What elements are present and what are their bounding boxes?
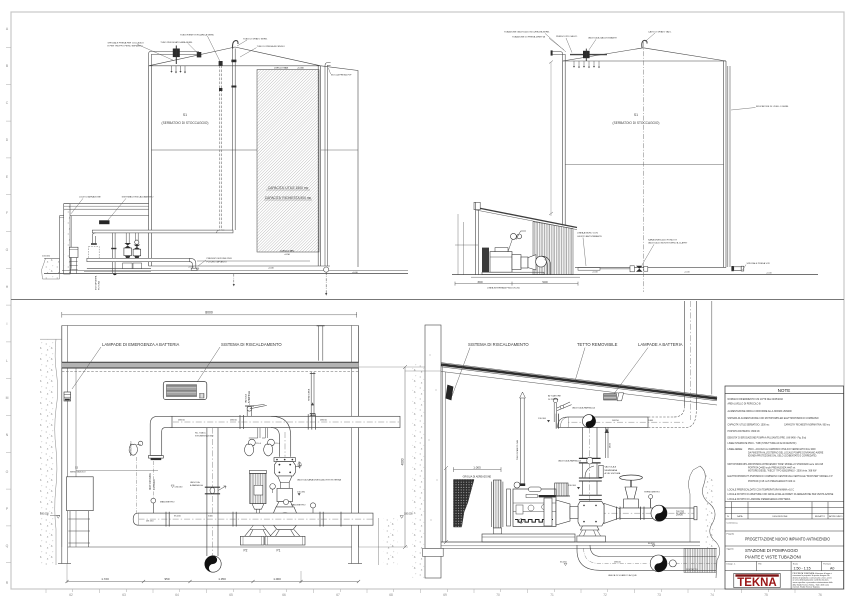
svg-text:MANOMETRO: MANOMETRO (160, 501, 175, 504)
svg-text:S1: S1 (634, 113, 638, 117)
svg-text:(SERBATOIO DI STOCCAGGIO): (SERBATOIO DI STOCCAGGIO) (613, 121, 660, 125)
svg-text:PRESSOSTATO: PRESSOSTATO (129, 441, 132, 456)
svg-text:TUBO SCARICO GAS: TUBO SCARICO GAS (516, 439, 519, 460)
svg-text:950: 950 (164, 577, 169, 581)
svg-text:63: 63 (122, 593, 126, 597)
svg-text:MEMBRANA: MEMBRANA (605, 469, 618, 472)
svg-text:SISTEMA DI RISCALDAMENTO: SISTEMA DI RISCALDAMENTO (468, 342, 529, 347)
svg-text:1:50 - 1:15: 1:50 - 1:15 (794, 566, 811, 570)
svg-text:INDICATORE DI LIVELLO SERB.: INDICATORE DI LIVELLO SERB. (756, 105, 789, 108)
svg-text:PN16 - ACCIAIO AL CARBONIO VIN: PN16 - ACCIAIO AL CARBONIO VINILICO VERN… (748, 448, 816, 451)
svg-text:DI PRESA: DI PRESA (548, 398, 559, 401)
svg-text:VALVOLA A FARFALLA: VALVOLA A FARFALLA (572, 407, 595, 410)
svg-text:E PER TROPPO PIENO IMPIANTO: E PER TROPPO PIENO IMPIANTO (108, 45, 143, 48)
svg-text:VASCA DI SCARICO ACQUE: VASCA DI SCARICO ACQUE (608, 574, 637, 577)
svg-text:ATTUATORE: ATTUATORE (548, 395, 561, 398)
svg-text:VALVOLA: VALVOLA (190, 481, 200, 484)
svg-text:MOTOPOMPA: MOTOPOMPA (95, 275, 98, 290)
svg-text:(SERBATOIO DI STOCCAGGIO): (SERBATOIO DI STOCCAGGIO) (162, 121, 209, 125)
svg-text:VALVOLA A: VALVOLA A (605, 466, 617, 469)
svg-text:SFIATO ARIA: SFIATO ARIA (307, 388, 310, 401)
svg-text:72: 72 (603, 593, 607, 597)
svg-text:ELETTROPOMPA PT-PS:: ELETTROPOMPA PT-PS: (728, 475, 754, 478)
svg-text:LAMPADE DI EMERGENZA A BATTERI: LAMPADE DI EMERGENZA A BATTERIA (102, 342, 180, 347)
svg-text:PORTATA RICHIESTA: 4500 lt/h: PORTATA RICHIESTA: 4500 lt/h (728, 430, 761, 433)
svg-text:100.000: 100.000 (404, 512, 413, 515)
svg-text:71: 71 (550, 593, 554, 597)
svg-text:SPECIALE PRESA PER COLLAUDO: SPECIALE PRESA PER COLLAUDO (108, 41, 145, 44)
svg-text:62: 62 (69, 593, 73, 597)
svg-text:TUBAZIONE VALVOLA DI SICUREZZA: TUBAZIONE VALVOLA DI SICUREZZA SERB. (504, 31, 550, 34)
svg-text:DN150: DN150 (230, 420, 238, 422)
svg-text:ALIMENTAZIONE IDRICA CONFORME: ALIMENTAZIONE IDRICA CONFORME ALLA NORMA… (728, 410, 793, 413)
svg-text:130.490: 130.490 (297, 491, 306, 493)
svg-text:LOCALE DOTATO DI APERTURE CON: LOCALE DOTATO DI APERTURE CON GRIGLIA NE… (728, 493, 834, 496)
svg-text:TUBAZIONE DI PRESA DIRETTA: TUBAZIONE DI PRESA DIRETTA (512, 36, 546, 39)
svg-text:DN150: DN150 (320, 420, 328, 422)
svg-text:IDONEA PROTEZIONE DAL GELO (CO: IDONEA PROTEZIONE DAL GELO (COIBENTATE E… (748, 454, 817, 457)
svg-text:CAPACITA' RICHIESTA NORMATIVA:: CAPACITA' RICHIESTA NORMATIVA: 900 mc (784, 423, 831, 426)
svg-text:SISTEMA DI RISCALDAMENTO: SISTEMA DI RISCALDAMENTO (221, 342, 282, 347)
svg-text:POZZETTO: POZZETTO (686, 569, 698, 571)
svg-text:TETTO REMOVIBILE: TETTO REMOVIBILE (577, 342, 618, 347)
svg-text:1.005: 1.005 (473, 465, 481, 469)
svg-text:130.360: 130.360 (568, 485, 577, 487)
svg-text:G: G (6, 248, 9, 252)
svg-text:PERISCOPIO VALVO: PERISCOPIO VALVO (556, 35, 577, 38)
svg-text:LIVELLO MIN: LIVELLO MIN (280, 251, 294, 253)
svg-text:MOTOPOMPA MP1-MP2:: MOTOPOMPA MP1-MP2: (728, 463, 754, 466)
svg-text:DN100: DN100 (614, 562, 622, 564)
svg-text:CAPACITA' UTILE 1500 mc: CAPACITA' UTILE 1500 mc (268, 186, 309, 190)
svg-text:PORTATA Q=900 mc/h PREVALE: PORTATA Q=900 mc/h PREVALENZA H=87 mt (748, 467, 796, 470)
svg-text:BOCCA PRESA VVF: BOCCA PRESA VVF (331, 74, 352, 77)
svg-text:POMPA ANTINCENDIO "FIRE" MODEL: POMPA ANTINCENDIO "FIRE" MODELLO STANDAR… (753, 463, 824, 466)
svg-text:100.000: 100.000 (40, 512, 49, 515)
svg-text:PROGETTAZIONE NUOVO IMPIANTO A: PROGETTAZIONE NUOVO IMPIANTO ANTINCENDIO (745, 537, 831, 542)
svg-text:103.000: 103.000 (42, 256, 51, 258)
svg-text:MOTORE DIESEL "IVECO" TIPO 828: MOTORE DIESEL "IVECO" TIPO 8281SRM10 - 2… (748, 470, 817, 473)
svg-text:4500: 4500 (477, 281, 483, 284)
svg-text:LOCALE DOTATO DI LAMPADE D'EME: LOCALE DOTATO DI LAMPADE D'EMERGENZA A B… (728, 498, 791, 501)
svg-text:SERB. GASOLIO: SERB. GASOLIO (70, 470, 86, 473)
svg-text:POMPA DI COMPENSO CENTRIFUGA V: POMPA DI COMPENSO CENTRIFUGA VERTICALE "… (753, 475, 833, 478)
svg-text:Scala: Scala (793, 564, 799, 566)
svg-text:STRUMENTAZIONE: STRUMENTAZIONE (195, 434, 214, 437)
svg-text:4000: 4000 (400, 458, 404, 465)
svg-text:69: 69 (443, 593, 447, 597)
svg-text:O: O (6, 470, 9, 474)
svg-text:P2: P2 (244, 548, 248, 552)
svg-text:A VIE SISTEMA: A VIE SISTEMA (605, 472, 621, 475)
svg-text:DA FINESTRA ALL'ESTERNO DEL LO: DA FINESTRA ALL'ESTERNO DEL LOCALE POMPE… (748, 451, 824, 454)
svg-text:AREA LIVELLO DI PERICOLO B: AREA LIVELLO DI PERICOLO B (728, 402, 762, 405)
svg-text:DN250: DN250 (612, 420, 620, 422)
svg-text:DENSITA' DI EROGAZIONE POMPA A: DENSITA' DI EROGAZIONE POMPA A PULSANTE … (728, 437, 807, 440)
svg-text:LOCALE PRERISCALDATO CON TEMPE: LOCALE PRERISCALDATO CON TEMPERATURA MIN… (728, 488, 795, 491)
svg-text:75: 75 (764, 593, 768, 597)
svg-text:SISTEMA DI RISCALDAMENTO: SISTEMA DI RISCALDAMENTO (122, 196, 154, 199)
svg-text:P1: P1 (277, 548, 281, 552)
svg-text:DN50: DN50 (610, 442, 612, 448)
svg-text:VALVOLA DI NON RITORNO A CLAPE: VALVOLA DI NON RITORNO A CLAPET (648, 242, 688, 245)
svg-text:F: F (6, 211, 8, 215)
svg-text:DATA: DATA (737, 515, 743, 518)
svg-text:NORMA DI RIFERIMENTO UNI 10779: NORMA DI RIFERIMENTO UNI 10779 DEL 04/05… (728, 398, 784, 401)
svg-text:I: I (7, 322, 8, 326)
svg-text:+0.50: +0.50 (284, 254, 290, 256)
svg-text:3400: 3400 (208, 516, 214, 518)
svg-text:APPROVATO: APPROVATO (829, 515, 843, 518)
svg-text:150.0: 150.0 (275, 443, 281, 445)
svg-text:Progetto: Progetto (727, 533, 735, 536)
svg-text:PREDISPOSIZIONE PER: PREDISPOSIZIONE PER (207, 258, 233, 260)
svg-text:Commessa: Commessa (727, 522, 739, 524)
svg-text:VALVOLA A FARFALLA: VALVOLA A FARFALLA (558, 460, 581, 463)
svg-text:73: 73 (657, 593, 661, 597)
svg-text:LUCE DI AERAZIONE: LUCE DI AERAZIONE (79, 196, 101, 199)
svg-text:FUTURA: FUTURA (152, 479, 156, 490)
svg-text:LINEA INTERRATA PN16 DN 250: LINEA INTERRATA PN16 DN 250 (487, 287, 521, 290)
svg-text:+0.00: +0.00 (352, 272, 358, 274)
svg-text:76: 76 (818, 593, 822, 597)
svg-text:VALVOLA A GALLEGGIANTE: VALVOLA A GALLEGGIANTE (588, 37, 617, 40)
svg-text:1.720: 1.720 (101, 577, 109, 581)
svg-text:CAVO DI SFIATO VALV.: CAVO DI SFIATO VALV. (648, 30, 672, 33)
svg-text:68: 68 (389, 593, 393, 597)
svg-text:riservati. Studio Tecnico Tegn: riservati. Studio Tecnico Tegnano. (793, 586, 821, 589)
svg-text:GRIGLIA DI AEREAZIONE: GRIGLIA DI AEREAZIONE (463, 475, 492, 478)
svg-text:LAMPADE A BATTERIA: LAMPADE A BATTERIA (638, 342, 683, 347)
svg-text:STAZIONE DI POMPAGGIO: STAZIONE DI POMPAGGIO (745, 548, 799, 553)
svg-text:LINEE INTERRATE:: LINEE INTERRATE: (728, 442, 749, 445)
svg-text:130.360: 130.360 (538, 418, 547, 420)
svg-text:TUBO DI PRESA INCENDIO: TUBO DI PRESA INCENDIO (257, 45, 285, 48)
svg-text:2408: 2408 (648, 420, 654, 422)
svg-text:VALVOLA: VALVOLA (244, 394, 247, 403)
svg-text:+0.00: +0.00 (766, 273, 772, 275)
svg-text:RIL. STACC: RIL. STACC (195, 431, 206, 434)
svg-text:NOTE: NOTE (778, 388, 791, 393)
svg-text:66: 66 (282, 593, 286, 597)
svg-text:+0.00: +0.00 (684, 272, 690, 274)
svg-text:DESCRIZIONE: DESCRIZIONE (773, 516, 788, 518)
svg-text:S1: S1 (183, 113, 187, 117)
svg-text:65: 65 (229, 593, 233, 597)
svg-text:PIANTE E VISTE TUBAZIONI: PIANTE E VISTE TUBAZIONI (745, 554, 801, 559)
svg-text:+0.00: +0.00 (268, 268, 274, 270)
svg-text:64: 64 (175, 593, 179, 597)
svg-text:150.0: 150.0 (256, 443, 262, 445)
svg-text:SPECIALE PRESA VVF: SPECIALE PRESA VVF (747, 262, 771, 265)
svg-text:PN16 - TUBI (STRUTTURE AD ALTA: PN16 - TUBI (STRUTTURE AD ALTA DENSITA') (748, 442, 797, 445)
svg-text:MOTOPOMPA: MOTOPOMPA (148, 473, 152, 490)
svg-text:130.630: 130.630 (174, 486, 183, 488)
svg-text:PORTATA Q=15 mc/h PREVALEN: PORTATA Q=15 mc/h PREVALENZA H=100 mt (748, 480, 796, 483)
svg-text:+0.00: +0.00 (188, 266, 194, 268)
svg-text:REDATTO: REDATTO (815, 515, 826, 518)
svg-text:1.000: 1.000 (273, 577, 281, 581)
svg-text:SISTEMA DI ALIMENTAZIONE CON M: SISTEMA DI ALIMENTAZIONE CON MOTOPOMPA E… (728, 417, 819, 420)
svg-text:+0.00: +0.00 (592, 272, 598, 274)
svg-text:DN150: DN150 (178, 420, 186, 422)
svg-text:+6.000: +6.000 (297, 68, 305, 70)
svg-text:26400: 26400 (676, 514, 683, 517)
svg-text:5200: 5200 (542, 281, 548, 284)
svg-text:8000: 8000 (205, 310, 213, 314)
svg-text:MANOMETRO: MANOMETRO (291, 503, 306, 506)
svg-text:TERMOMETRO: TERMOMETRO (644, 492, 660, 494)
svg-text:CAPACITA' UTILE SERBATOIO: 15: CAPACITA' UTILE SERBATOIO: 1500 mc (728, 423, 771, 426)
svg-text:SARACINESCA DI FONDO E: SARACINESCA DI FONDO E (648, 238, 677, 241)
svg-text:CAPACITA' RICHIESTA 900 mc: CAPACITA' RICHIESTA 900 mc (265, 196, 312, 200)
svg-text:TUBO RIEMP. E RICARICA SERB.: TUBO RIEMP. E RICARICA SERB. (180, 34, 215, 37)
svg-text:Disegn. n.: Disegn. n. (727, 564, 736, 566)
svg-text:VALVOLA SARACINESCA A VITE EST: VALVOLA SARACINESCA A VITE ESTERNA (297, 478, 341, 481)
svg-text:1.350: 1.350 (218, 577, 226, 581)
svg-text:Formato: Formato (823, 563, 831, 566)
svg-text:FUTURA: FUTURA (98, 281, 101, 290)
svg-text:A0: A0 (830, 567, 834, 571)
svg-text:Q: Q (6, 544, 9, 548)
svg-text:M: M (6, 396, 9, 400)
svg-text:TEKNA: TEKNA (737, 575, 777, 589)
svg-text:74: 74 (710, 593, 714, 597)
svg-text:Oggetto: Oggetto (727, 547, 735, 550)
svg-text:95.000: 95.000 (174, 515, 181, 517)
svg-text:DN 250: DN 250 (146, 521, 154, 523)
svg-text:A FARFALLA: A FARFALLA (190, 484, 203, 487)
svg-text:L: L (6, 359, 8, 363)
svg-text:FUTURO IMPIANTO: FUTURO IMPIANTO (207, 260, 228, 263)
svg-text:LINEA A MURO CON: LINEA A MURO CON (577, 232, 598, 235)
svg-text:67: 67 (336, 593, 340, 597)
svg-text:LIVELLO MAX: LIVELLO MAX (274, 67, 289, 70)
svg-text:70: 70 (496, 593, 500, 597)
svg-text:A FARFALLA: A FARFALLA (248, 391, 251, 403)
svg-text:GIUNTO ANTIVIBRANTE: GIUNTO ANTIVIBRANTE (577, 235, 602, 238)
svg-text:LINEE AEREE:: LINEE AEREE: (728, 448, 744, 451)
